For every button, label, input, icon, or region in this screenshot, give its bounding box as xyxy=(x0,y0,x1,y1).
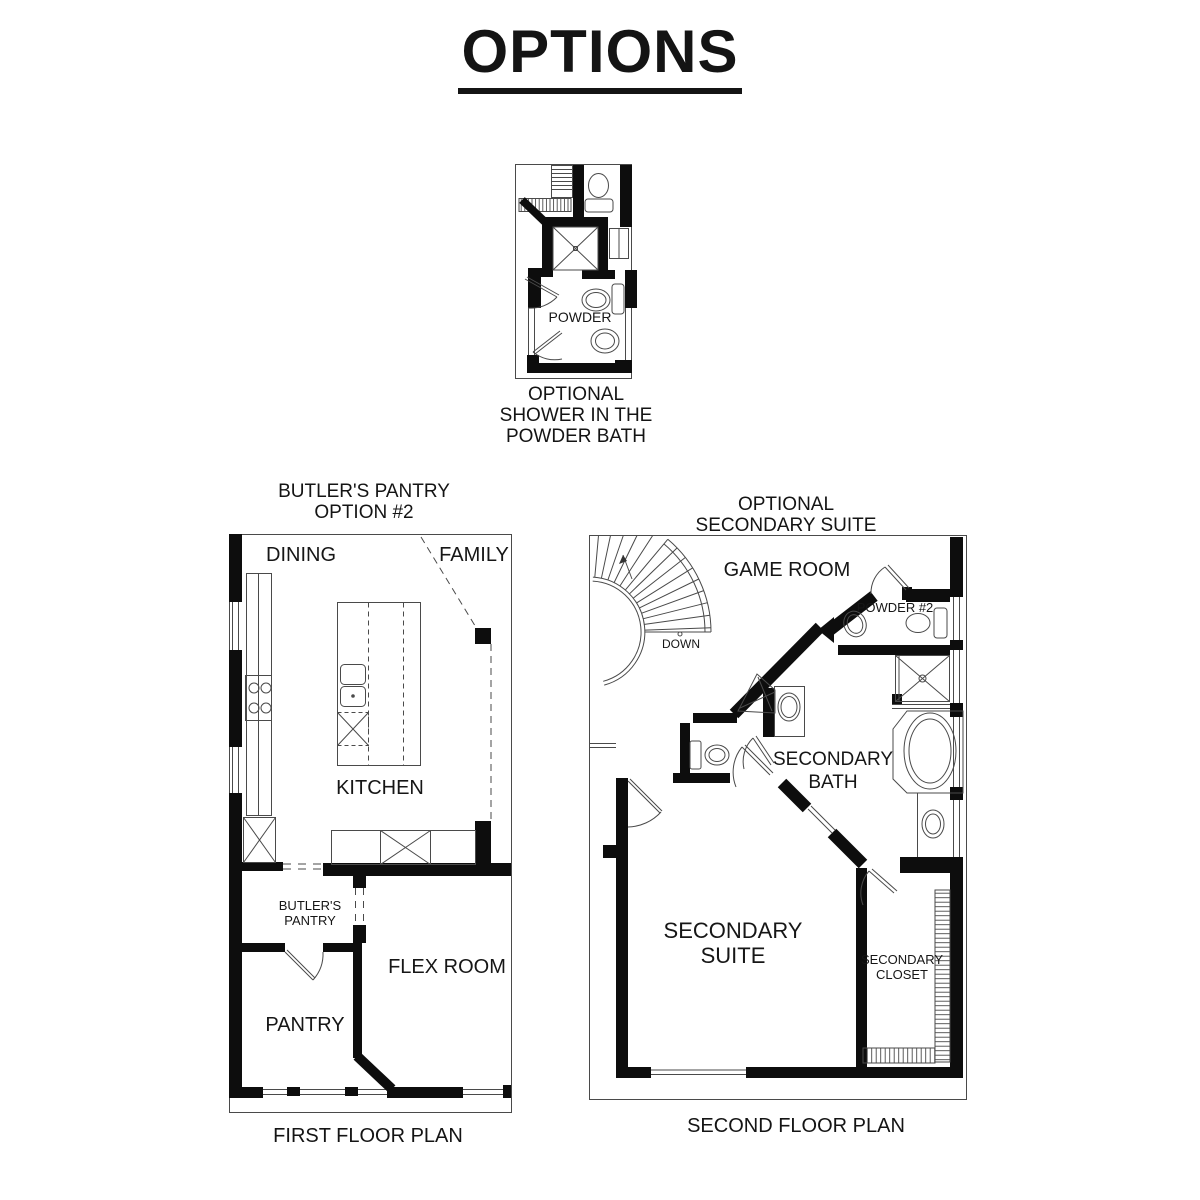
door-swing-icon xyxy=(808,806,835,833)
sink-icon xyxy=(341,665,366,707)
staircase-icon: DOWN xyxy=(593,536,711,686)
vanity-sink-icon xyxy=(775,687,805,737)
room-label-secondary-suite: SUITE xyxy=(701,943,766,968)
counter xyxy=(247,574,272,816)
toilet-icon xyxy=(918,793,945,857)
second-floor-plan: DOWN xyxy=(586,531,978,1103)
caption-line: SHOWER IN THE xyxy=(500,405,653,426)
room-label-flex-room: FLEX ROOM xyxy=(388,956,506,978)
second-floor-header: OPTIONAL SECONDARY SUITE xyxy=(696,494,877,536)
door-swing-icon xyxy=(733,745,773,787)
room-label-butlers-pantry: BUTLER'S xyxy=(279,898,342,913)
shower-icon xyxy=(553,227,598,270)
first-floor-caption: FIRST FLOOR PLAN xyxy=(273,1125,463,1147)
room-label-powder-2: POWDER #2 xyxy=(857,600,934,615)
walls xyxy=(522,165,637,373)
room-label-secondary-bath: BATH xyxy=(808,772,857,793)
room-label-powder: POWDER xyxy=(549,309,612,325)
header-line: BUTLER'S PANTRY xyxy=(278,481,450,502)
linen-closet xyxy=(610,229,629,259)
plan-outline xyxy=(590,536,967,1100)
room-label-dining: DINING xyxy=(266,544,336,566)
refrigerator-icon xyxy=(244,818,276,863)
room-label-secondary-closet: SECONDARY xyxy=(861,952,943,967)
toilet-icon xyxy=(690,741,729,769)
caption-line: POWDER BATH xyxy=(500,426,653,447)
room-label-pantry: PANTRY xyxy=(265,1014,344,1036)
toilet-icon xyxy=(585,174,613,213)
room-label-secondary-closet: CLOSET xyxy=(876,967,928,982)
powder-plan-caption: OPTIONAL SHOWER IN THE POWDER BATH xyxy=(500,384,653,447)
caption-line: OPTIONAL xyxy=(500,384,653,405)
room-label-family: FAMILY xyxy=(439,544,509,566)
cabinet-icon xyxy=(338,713,369,746)
door-swing-icon xyxy=(533,331,562,360)
options-sheet: OPTIONS xyxy=(0,0,1200,1200)
door-swing-icon xyxy=(285,950,323,980)
kitchen-island xyxy=(338,603,421,766)
powder-bath-option-plan: POWDER xyxy=(505,160,645,388)
first-floor-header: BUTLER'S PANTRY OPTION #2 xyxy=(278,481,450,523)
second-floor-caption: SECOND FLOOR PLAN xyxy=(687,1115,905,1137)
room-label-secondary-suite: SECONDARY xyxy=(664,918,803,943)
caption-line: FIRST FLOOR PLAN xyxy=(273,1125,463,1147)
page-title-text: OPTIONS xyxy=(458,22,741,94)
bathtub-icon xyxy=(893,711,963,793)
walls xyxy=(603,537,963,1078)
header-line: OPTIONAL xyxy=(696,494,877,515)
counter xyxy=(332,831,476,865)
toilet-icon xyxy=(591,329,619,353)
caption-line: SECOND FLOOR PLAN xyxy=(687,1115,905,1137)
room-label-secondary-bath: SECONDARY xyxy=(773,749,893,770)
stair-label-down: DOWN xyxy=(662,637,700,651)
room-label-game-room: GAME ROOM xyxy=(724,559,851,581)
room-label-kitchen: KITCHEN xyxy=(336,777,424,799)
page-title: OPTIONS xyxy=(0,22,1200,94)
first-floor-plan: DINING FAMILY KITCHEN BUTLER'S PANTRY FL… xyxy=(225,528,515,1120)
header-line: OPTION #2 xyxy=(278,502,450,523)
room-label-butlers-pantry: PANTRY xyxy=(284,913,336,928)
door-swing-icon xyxy=(628,779,662,827)
